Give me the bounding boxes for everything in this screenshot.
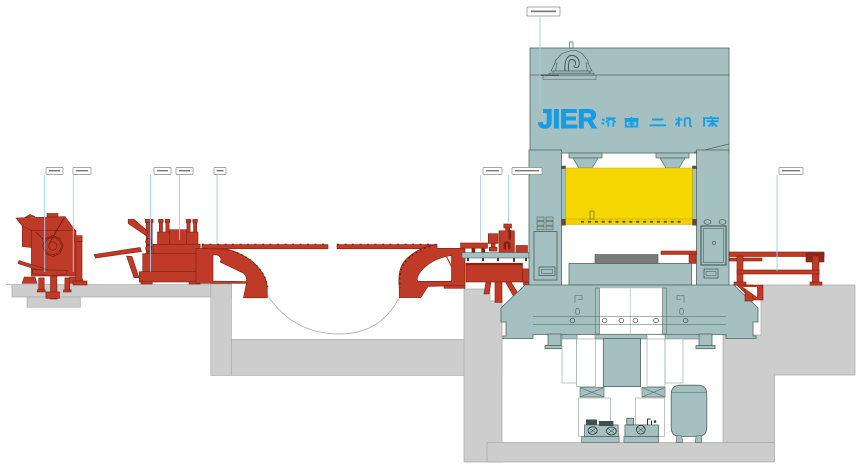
svg-text:JIER: JIER xyxy=(538,104,597,134)
